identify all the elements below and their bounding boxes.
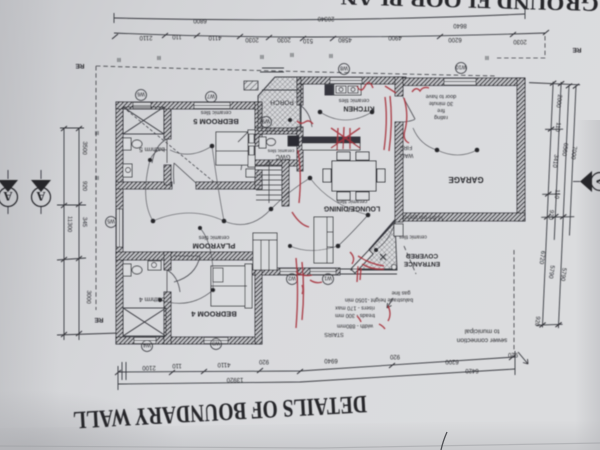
- svg-text:W6: W6: [137, 91, 145, 97]
- svg-text:13920: 13920: [226, 376, 243, 382]
- svg-text:110: 110: [172, 33, 182, 39]
- svg-text:W2: W2: [288, 275, 296, 281]
- svg-text:bathrm 5: bathrm 5: [139, 146, 165, 153]
- svg-text:2100: 2100: [142, 364, 156, 370]
- svg-text:BEDROOM 4: BEDROOM 4: [190, 310, 236, 319]
- svg-text:door to have: door to have: [426, 93, 457, 99]
- svg-text:A: A: [36, 189, 45, 203]
- svg-text:A: A: [3, 189, 12, 203]
- svg-text:RE: RE: [75, 62, 85, 69]
- svg-text:risers - 170 max: risers - 170 max: [335, 305, 375, 311]
- svg-text:RE: RE: [94, 316, 104, 323]
- svg-text:W8: W8: [340, 65, 348, 71]
- svg-text:510: 510: [302, 37, 313, 43]
- svg-text:920: 920: [389, 353, 400, 359]
- svg-text:balustrade height -1050 min: balustrade height -1050 min: [345, 297, 413, 303]
- svg-text:PORCH: PORCH: [270, 99, 294, 106]
- svg-text:6800: 6800: [193, 17, 207, 23]
- svg-text:rating: rating: [434, 114, 448, 120]
- svg-text:20340: 20340: [317, 15, 334, 21]
- svg-text:ceramic tiles: ceramic tiles: [336, 198, 367, 204]
- svg-text:6940: 6940: [324, 357, 338, 363]
- svg-text:2030: 2030: [277, 36, 291, 42]
- svg-text:W7: W7: [207, 93, 215, 99]
- svg-text:6200: 6200: [445, 358, 459, 364]
- svg-text:to municipal: to municipal: [464, 328, 499, 335]
- svg-text:III: III: [117, 56, 121, 62]
- svg-text:STAIRS: STAIRS: [324, 331, 344, 337]
- svg-text:III: III: [290, 51, 294, 57]
- svg-text:GARAGE: GARAGE: [448, 175, 484, 184]
- svg-text:A: A: [594, 177, 600, 186]
- svg-text:III: III: [260, 53, 264, 59]
- svg-text:4110: 4110: [217, 361, 231, 367]
- svg-text:110: 110: [172, 362, 182, 368]
- svg-text:LOUNGE/DINING: LOUNGE/DINING: [323, 205, 380, 212]
- svg-text:III: III: [95, 174, 99, 180]
- svg-text:920: 920: [81, 181, 87, 192]
- svg-text:BEDROOM 5: BEDROOM 5: [193, 117, 238, 126]
- svg-text:4900: 4900: [388, 34, 402, 40]
- svg-text:sewer connection: sewer connection: [456, 337, 507, 344]
- svg-text:16 litre gas geyser: 16 litre gas geyser: [402, 214, 443, 220]
- svg-text:3500: 3500: [81, 141, 87, 155]
- svg-text:W4: W4: [143, 342, 151, 348]
- svg-text:PLAYROOM: PLAYROOM: [193, 242, 236, 251]
- svg-text:W3: W3: [212, 340, 220, 346]
- svg-text:2030: 2030: [245, 36, 259, 42]
- svg-text:345: 345: [81, 217, 87, 228]
- svg-text:3000: 3000: [85, 290, 91, 304]
- svg-text:30 minute: 30 minute: [429, 100, 453, 106]
- svg-text:6420: 6420: [465, 367, 479, 373]
- svg-text:W9: W9: [262, 118, 270, 124]
- svg-text:W5: W5: [107, 218, 115, 224]
- svg-text:6200: 6200: [448, 36, 462, 42]
- svg-text:4580: 4580: [338, 36, 352, 42]
- svg-text:RE: RE: [572, 46, 582, 53]
- svg-text:2030: 2030: [513, 38, 527, 44]
- svg-text:bathrm 4: bathrm 4: [139, 296, 165, 303]
- svg-text:KITCHEN: KITCHEN: [343, 105, 374, 112]
- svg-text:ceramic tiles: ceramic tiles: [338, 97, 369, 103]
- svg-text:ceramic tiles: ceramic tiles: [200, 109, 231, 115]
- svg-text:FIRE: FIRE: [399, 144, 412, 150]
- svg-text:width - 880mm: width - 880mm: [337, 323, 374, 329]
- svg-text:920: 920: [507, 351, 518, 357]
- svg-text:fire: fire: [437, 107, 445, 113]
- svg-text:ENTRANCE: ENTRANCE: [403, 260, 440, 267]
- svg-text:ceramic tiles: ceramic tiles: [399, 234, 427, 240]
- svg-text:8640: 8640: [453, 22, 467, 28]
- svg-text:ceramic tiles: ceramic tiles: [198, 234, 229, 240]
- svg-text:WALL: WALL: [399, 152, 414, 158]
- svg-text:III: III: [329, 52, 333, 58]
- svg-text:4110: 4110: [208, 34, 222, 40]
- svg-text:treads - 300 mm: treads - 300 mm: [335, 312, 375, 318]
- svg-text:III: III: [95, 129, 99, 135]
- svg-text:2110: 2110: [139, 34, 153, 40]
- svg-text:ceramic tiles: ceramic tiles: [267, 148, 294, 154]
- svg-text:11300: 11300: [66, 216, 73, 233]
- svg-text:III: III: [157, 54, 161, 60]
- svg-text:920: 920: [258, 358, 269, 364]
- svg-text:W1: W1: [324, 275, 332, 281]
- svg-text:GWC: GWC: [275, 153, 290, 159]
- svg-text:W10: W10: [456, 64, 467, 70]
- svg-text:COVERED: COVERED: [406, 252, 438, 259]
- svg-text:gas line: gas line: [392, 290, 411, 296]
- svg-text:III: III: [485, 54, 489, 60]
